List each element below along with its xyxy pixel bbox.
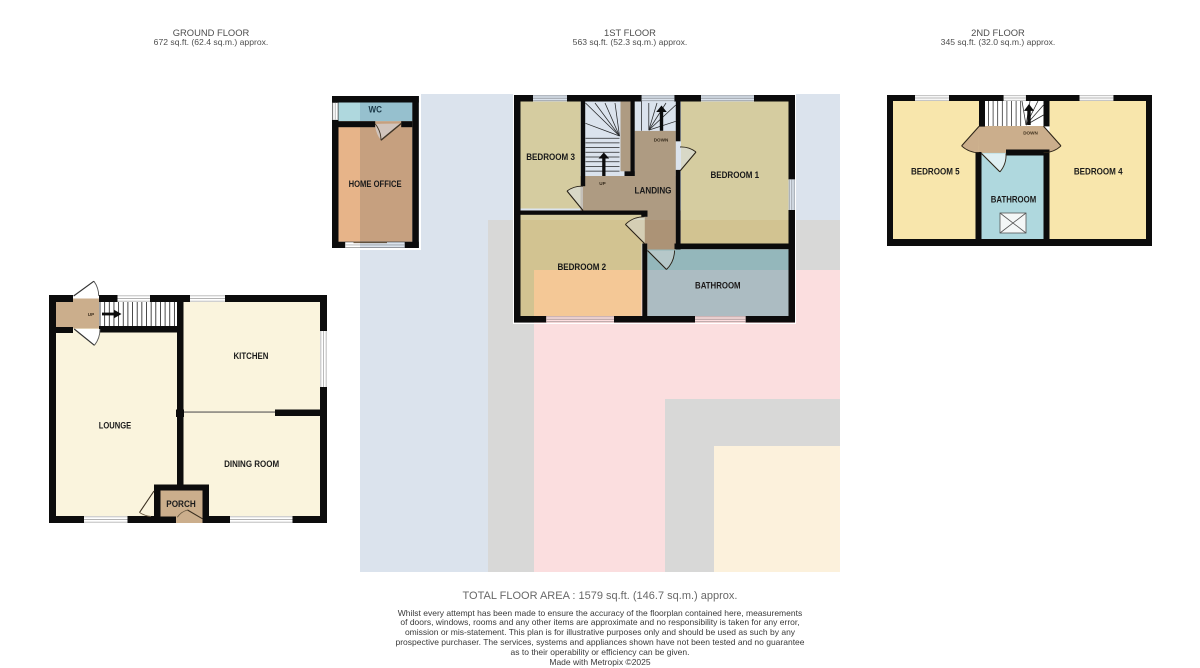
svg-text:KITCHEN: KITCHEN [234,351,269,361]
svg-text:DOWN: DOWN [1023,131,1038,136]
svg-text:UP: UP [88,312,94,317]
svg-text:BEDROOM 4: BEDROOM 4 [1074,167,1123,177]
svg-text:DINING ROOM: DINING ROOM [224,459,279,469]
svg-text:BATHROOM: BATHROOM [991,195,1037,205]
svg-text:PORCH: PORCH [166,499,196,509]
svg-text:BEDROOM 5: BEDROOM 5 [911,167,960,177]
svg-text:LOUNGE: LOUNGE [99,420,132,430]
